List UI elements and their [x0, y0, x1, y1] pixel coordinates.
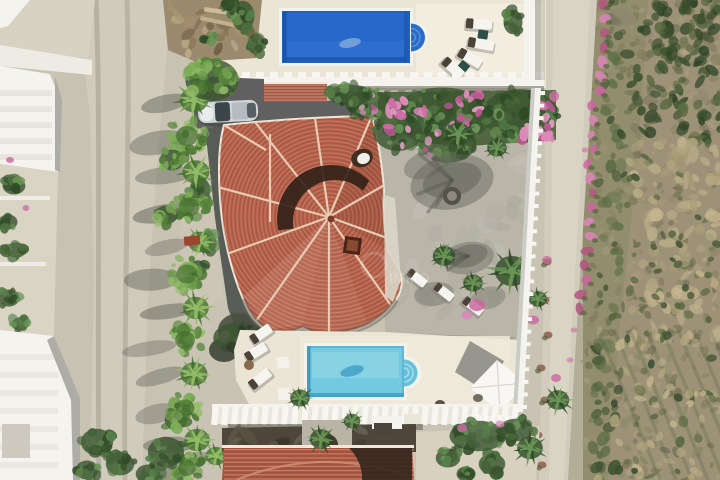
svg-text:IMMÖ: IMMÖ: [389, 270, 430, 287]
